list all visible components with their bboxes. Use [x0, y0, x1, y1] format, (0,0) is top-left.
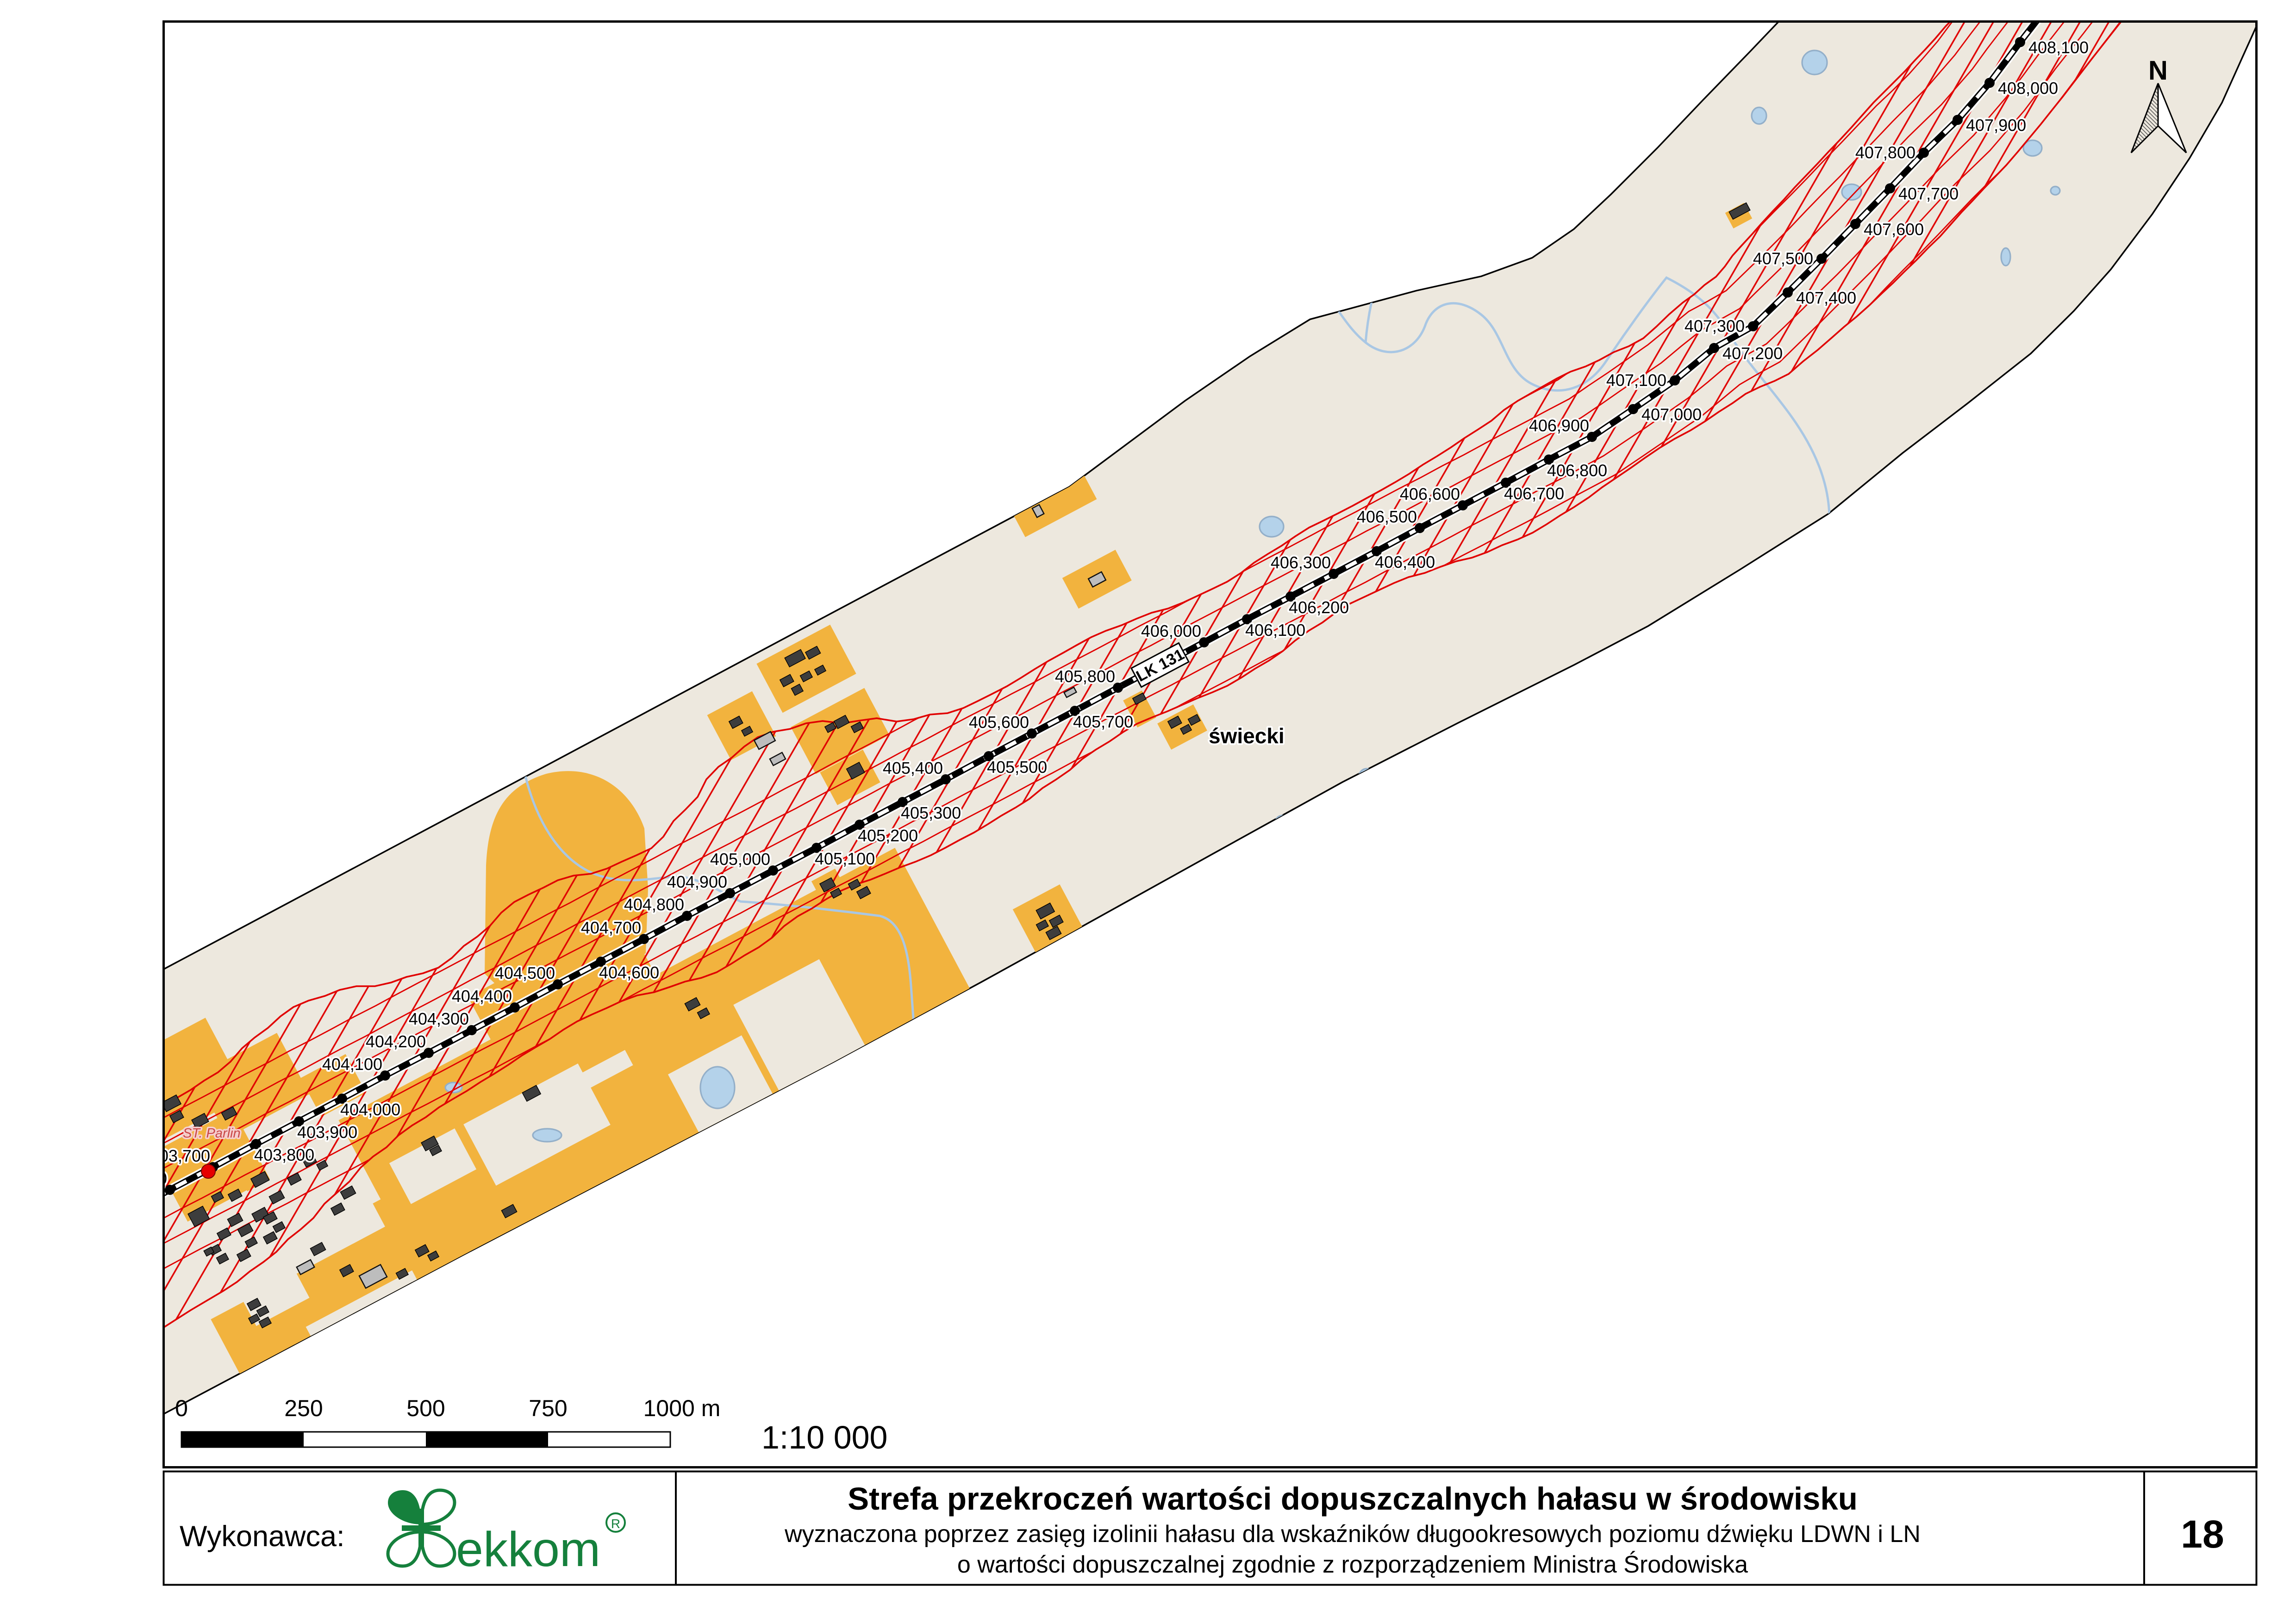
svg-text:404,400: 404,400 [452, 987, 512, 1006]
svg-text:404,100: 404,100 [322, 1055, 382, 1074]
svg-text:405,700: 405,700 [1073, 712, 1133, 731]
svg-text:404,700: 404,700 [581, 918, 641, 937]
svg-text:0: 0 [175, 1395, 188, 1421]
svg-text:wyznaczona poprzez zasięg izol: wyznaczona poprzez zasięg izolinii hałas… [784, 1521, 1921, 1548]
svg-text:N: N [2148, 56, 2168, 86]
svg-text:404,600: 404,600 [599, 963, 659, 982]
svg-text:407,900: 407,900 [1966, 116, 2026, 135]
svg-text:407,800: 407,800 [1855, 143, 1915, 162]
svg-text:408,000: 408,000 [1998, 79, 2058, 98]
svg-text:1000 m: 1000 m [643, 1395, 721, 1421]
svg-text:403,900: 403,900 [297, 1123, 357, 1142]
svg-text:406,100: 406,100 [1245, 621, 1305, 640]
svg-text:Wykonawca:: Wykonawca: [180, 1520, 345, 1553]
svg-text:406,300: 406,300 [1271, 553, 1331, 572]
svg-text:ST. Parlin: ST. Parlin [183, 1126, 241, 1141]
svg-text:R: R [611, 1517, 620, 1531]
svg-text:406,800: 406,800 [1547, 461, 1607, 480]
svg-text:404,000: 404,000 [340, 1100, 400, 1119]
svg-text:404,800: 404,800 [624, 895, 684, 914]
svg-text:świecki: świecki [1209, 724, 1285, 748]
svg-text:404,300: 404,300 [409, 1009, 469, 1028]
svg-text:407,000: 407,000 [1641, 405, 1702, 424]
svg-text:407,300: 407,300 [1685, 317, 1745, 336]
svg-text:406,400: 406,400 [1375, 553, 1435, 572]
svg-text:406,700: 406,700 [1504, 484, 1564, 503]
svg-text:406,600: 406,600 [1400, 485, 1460, 504]
svg-text:1:10 000: 1:10 000 [761, 1419, 887, 1455]
svg-text:407,200: 407,200 [1722, 344, 1783, 363]
svg-text:ekkom: ekkom [456, 1522, 600, 1577]
svg-text:404,200: 404,200 [366, 1032, 426, 1051]
svg-text:407,500: 407,500 [1753, 249, 1813, 268]
svg-text:18: 18 [2181, 1512, 2224, 1556]
svg-text:407,100: 407,100 [1606, 371, 1666, 390]
svg-text:405,600: 405,600 [969, 713, 1029, 732]
svg-text:405,000: 405,000 [710, 850, 770, 869]
svg-text:405,300: 405,300 [901, 803, 961, 822]
svg-text:407,400: 407,400 [1796, 288, 1856, 307]
svg-text:404,900: 404,900 [667, 872, 727, 891]
svg-text:405,100: 405,100 [815, 849, 875, 868]
svg-text:405,200: 405,200 [858, 826, 918, 845]
svg-text:o wartości dopuszczalnej zgodn: o wartości dopuszczalnej zgodnie z rozpo… [957, 1551, 1748, 1578]
svg-text:407,600: 407,600 [1864, 220, 1924, 239]
svg-text:407,700: 407,700 [1898, 184, 1959, 203]
svg-text:250: 250 [284, 1395, 323, 1421]
svg-text:750: 750 [529, 1395, 567, 1421]
svg-text:403,800: 403,800 [254, 1145, 314, 1164]
svg-text:406,500: 406,500 [1357, 507, 1417, 526]
svg-text:405,800: 405,800 [1055, 667, 1115, 686]
svg-text:500: 500 [406, 1395, 445, 1421]
svg-text:405,400: 405,400 [883, 759, 943, 777]
svg-text:408,100: 408,100 [2028, 38, 2089, 57]
svg-text:404,500: 404,500 [495, 964, 555, 983]
svg-text:406,000: 406,000 [1141, 622, 1201, 640]
svg-text:Strefa przekroczeń wartości do: Strefa przekroczeń wartości dopuszczalny… [848, 1481, 1858, 1517]
svg-text:406,200: 406,200 [1289, 598, 1349, 617]
svg-text:406,900: 406,900 [1529, 416, 1589, 435]
svg-text:405,500: 405,500 [987, 758, 1047, 777]
